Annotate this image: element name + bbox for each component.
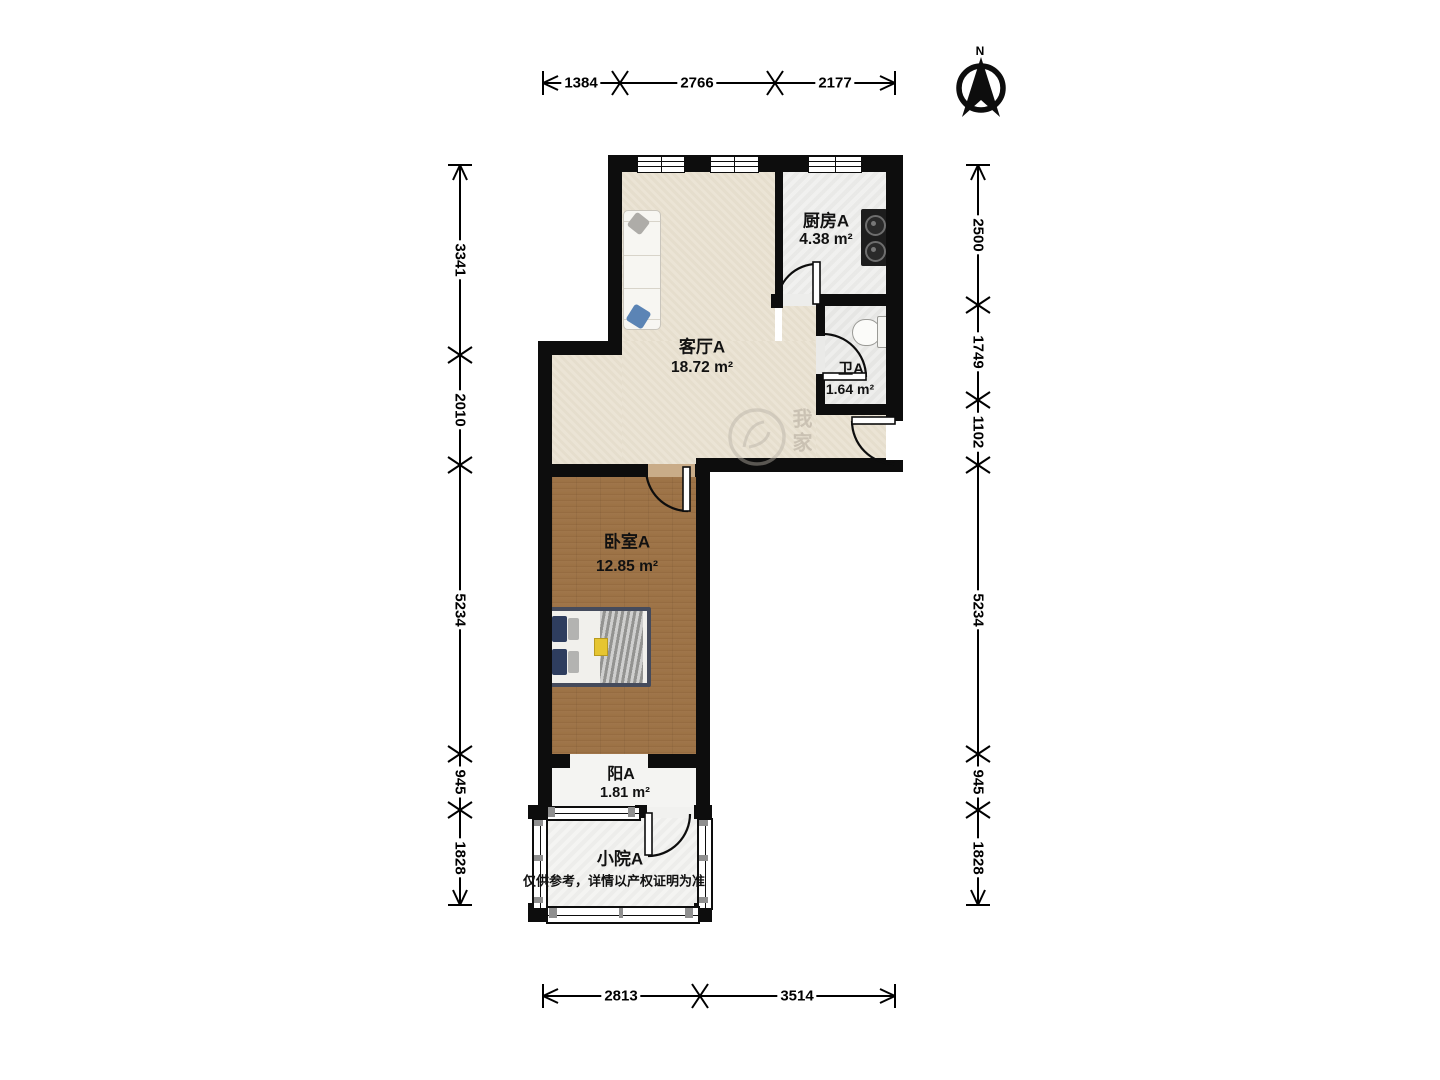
kitchen-door-arc	[777, 264, 817, 304]
dim-right-4: 5234	[970, 590, 987, 629]
dim-left-4: 945	[452, 766, 469, 797]
kitchen-label: 厨房A	[803, 207, 849, 232]
dim-left-1: 3341	[452, 240, 469, 279]
bedroom-label: 卧室A	[604, 528, 650, 553]
dim-right-2: 1749	[970, 332, 987, 371]
bedroom-door-leaf	[683, 467, 690, 511]
living-area: 18.72 m²	[671, 359, 733, 377]
dim-top-3: 2177	[815, 75, 854, 92]
dim-left-3: 5234	[452, 590, 469, 629]
kitchen-door-leaf	[813, 262, 820, 304]
entry-door-arc	[852, 421, 895, 464]
dim-top-1: 1384	[561, 75, 600, 92]
bath-area: 1.64 m²	[826, 381, 874, 397]
courtyard-door-arc	[648, 814, 690, 856]
north-label: N	[976, 44, 985, 58]
dim-right-5: 945	[970, 766, 987, 797]
watermark-logo	[730, 410, 784, 464]
dimension-chain-bottom	[543, 984, 895, 1008]
courtyard-door-leaf	[645, 813, 652, 855]
dim-left-2: 2010	[452, 390, 469, 429]
dim-right-1: 2500	[970, 215, 987, 254]
entry-door-leaf	[852, 417, 895, 424]
dim-top-2: 2766	[677, 75, 716, 92]
bedroom-door-arc	[646, 469, 688, 511]
courtyard-label: 小院A	[597, 845, 643, 870]
balcony-label: 阳A	[607, 760, 635, 784]
living-label: 客厅A	[679, 333, 725, 358]
disclaimer-text: 仅供参考，详情以产权证明为准	[523, 871, 705, 890]
dim-right-6: 1828	[970, 838, 987, 877]
dim-right-3: 1102	[970, 413, 987, 452]
dim-left-5: 1828	[452, 838, 469, 877]
bedroom-area: 12.85 m²	[596, 558, 658, 576]
dim-bottom-2: 3514	[777, 988, 816, 1005]
bath-label: 卫A	[838, 358, 864, 379]
overlay-svg	[0, 0, 1440, 1080]
north-compass-icon	[959, 57, 1003, 117]
balcony-area: 1.81 m²	[600, 785, 650, 801]
dim-bottom-1: 2813	[601, 988, 640, 1005]
floor-plan-canvas: 1384 2766 2177 2813 3514 3341 2010 5234 …	[0, 0, 1440, 1080]
kitchen-area: 4.38 m²	[799, 231, 852, 249]
